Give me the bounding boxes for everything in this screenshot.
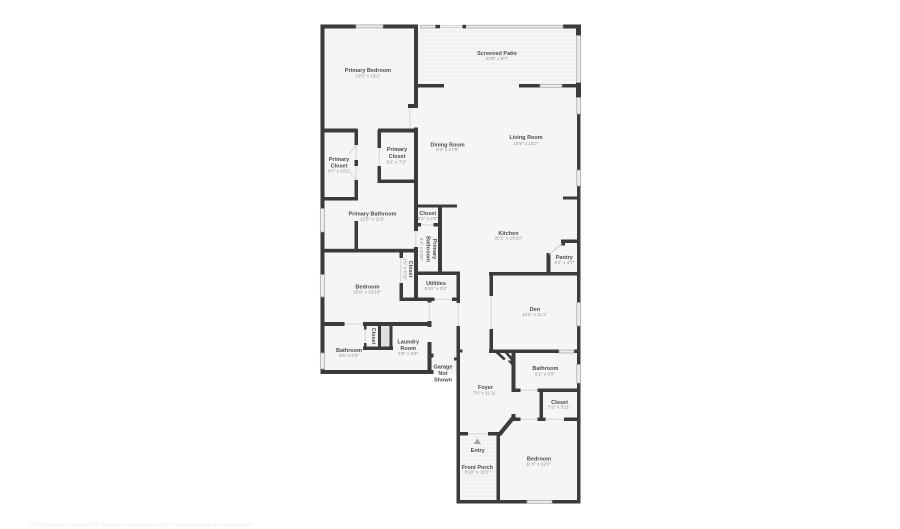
svg-text:11'4" x 12'0": 11'4" x 12'0" — [526, 462, 551, 467]
svg-text:15'5" x 16'2": 15'5" x 16'2" — [513, 141, 539, 146]
svg-text:9'6" x 6'9": 9'6" x 6'9" — [339, 353, 359, 358]
svg-text:1'5" x 4'11": 1'5" x 4'11" — [403, 258, 408, 281]
svg-text:5'1" x 3'11": 5'1" x 3'11" — [548, 405, 571, 410]
svg-text:20'1" x 10'10": 20'1" x 10'10" — [495, 235, 523, 240]
svg-text:Primary: Primary — [387, 147, 408, 153]
svg-text:Entry: Entry — [471, 448, 486, 454]
svg-text:9'2" x 5'5": 9'2" x 5'5" — [535, 371, 555, 376]
svg-text:5'10" x 3'4": 5'10" x 3'4" — [425, 286, 448, 291]
svg-text:15'6" x 10'10": 15'6" x 10'10" — [353, 289, 381, 294]
svg-text:4'7" x 10'1": 4'7" x 10'1" — [328, 169, 351, 174]
svg-text:Shown: Shown — [434, 378, 453, 384]
svg-text:3'4" x 6'10": 3'4" x 6'10" — [419, 238, 424, 261]
svg-text:Not: Not — [438, 371, 447, 377]
svg-text:5'8" x 6'8": 5'8" x 6'8" — [398, 351, 418, 356]
svg-text:12'5" x 11'1": 12'5" x 11'1" — [522, 312, 547, 317]
svg-text:4'2" x 4'7": 4'2" x 4'7" — [554, 260, 574, 265]
svg-text:13'5" x 15'2": 13'5" x 15'2" — [355, 73, 381, 78]
svg-text:Closet: Closet — [370, 328, 376, 345]
svg-text:Garage: Garage — [434, 365, 453, 371]
svg-text:9'1" x 7'2": 9'1" x 7'2" — [386, 159, 406, 164]
svg-text:12'5" x 11'8": 12'5" x 11'8" — [360, 216, 385, 221]
svg-text:5'10" x 10'1": 5'10" x 10'1" — [465, 470, 491, 475]
svg-text:23'9" x 8'7": 23'9" x 8'7" — [486, 56, 509, 61]
svg-text:Primary: Primary — [431, 239, 437, 260]
svg-text:Floor plans are provided for i: Floor plans are provided for illustratio… — [30, 523, 254, 529]
svg-text:Bathroom: Bathroom — [425, 236, 431, 262]
svg-text:8'4" x 17'6": 8'4" x 17'6" — [436, 147, 459, 152]
svg-text:3'4" x 2'5": 3'4" x 2'5" — [418, 216, 438, 221]
svg-text:7'8" x 11'11": 7'8" x 11'11" — [473, 390, 498, 395]
svg-text:Primary: Primary — [329, 157, 350, 163]
svg-text:Laundry: Laundry — [397, 340, 420, 346]
